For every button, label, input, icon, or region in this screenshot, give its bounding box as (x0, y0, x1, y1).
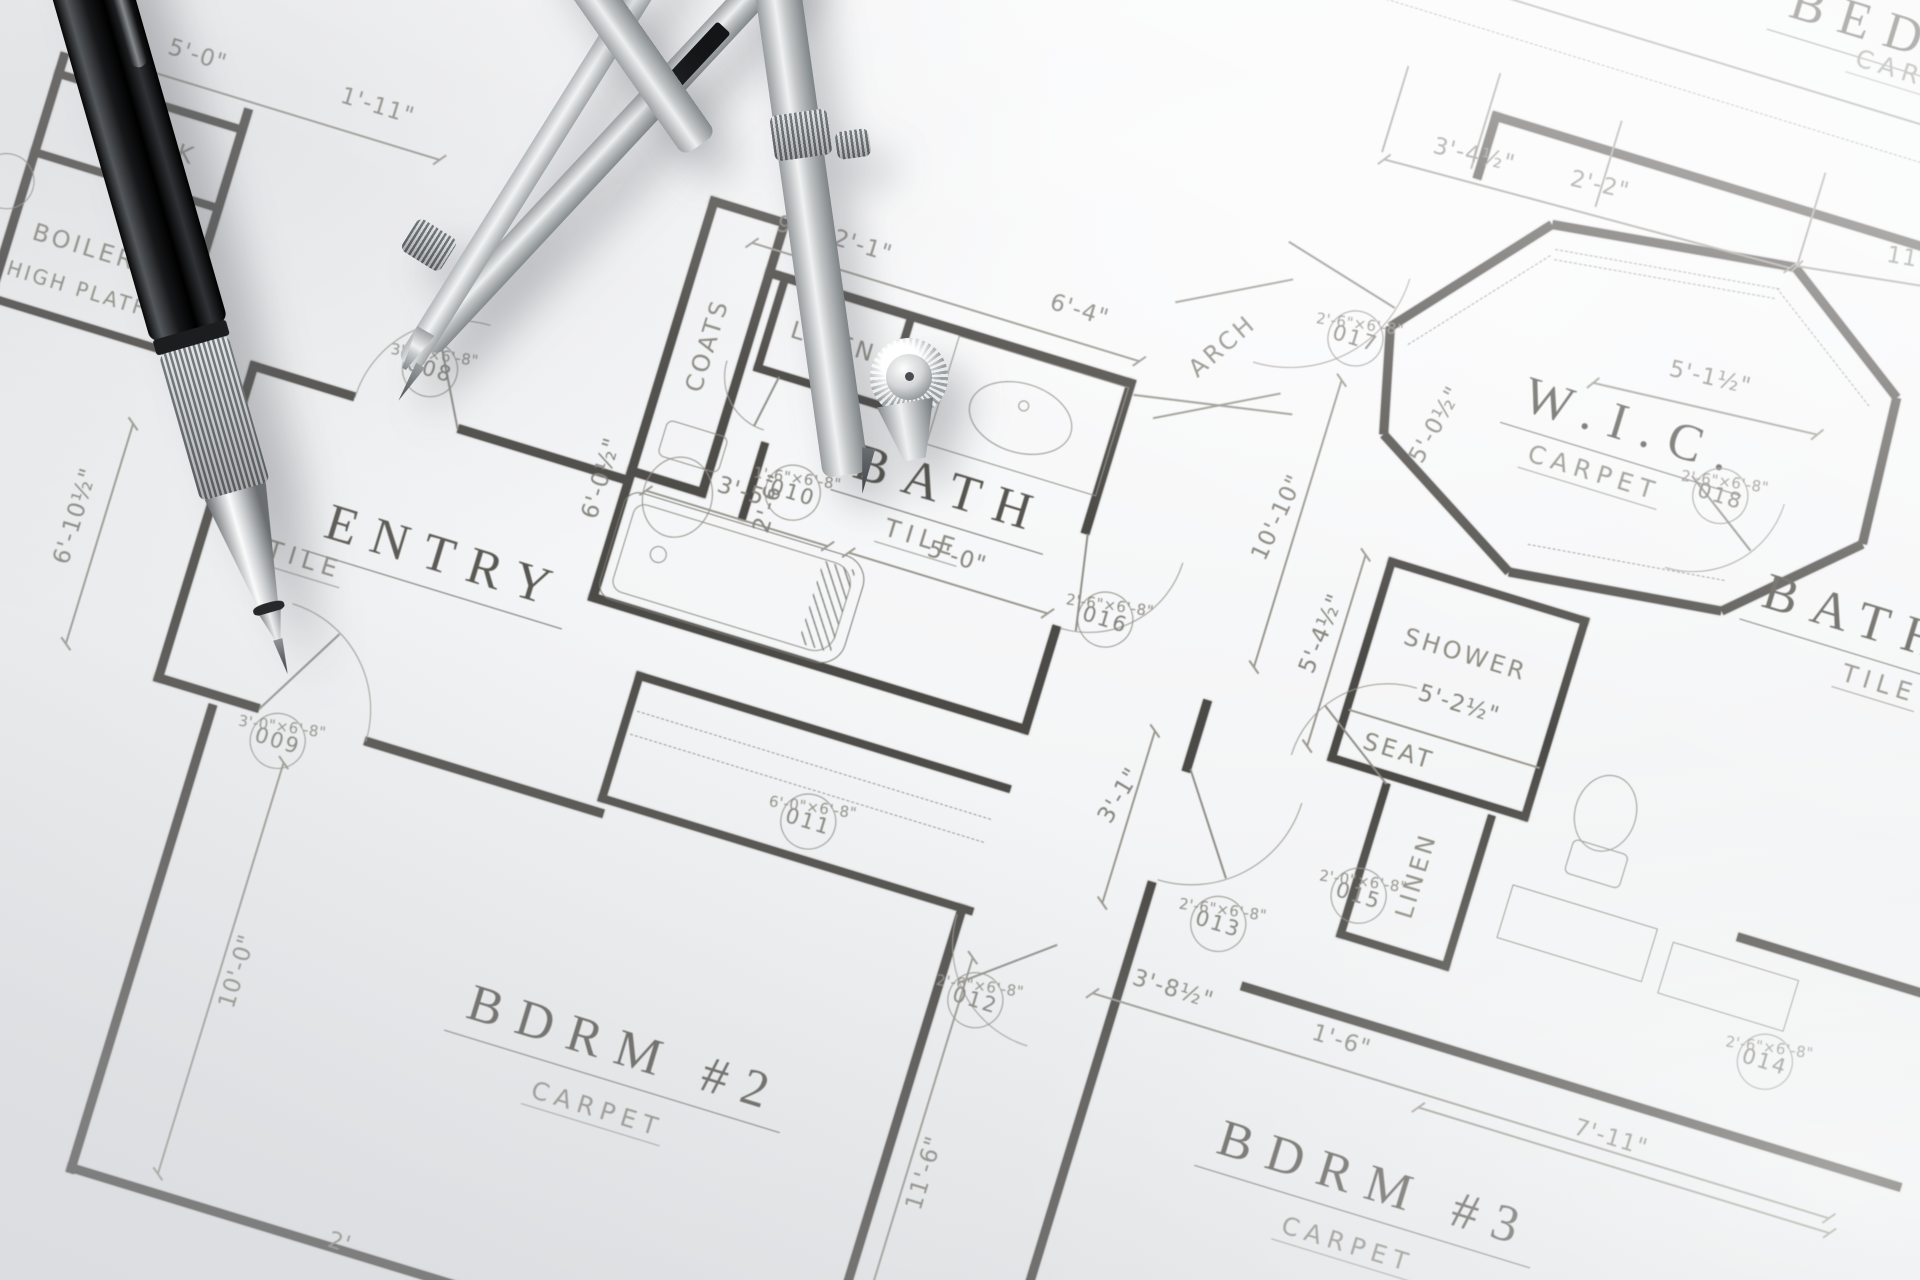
compass-thumb-wheel (834, 128, 872, 160)
dimension-label: 3'-1" (1093, 763, 1146, 828)
blueprint-photo: 5'-0" 1'-11" 9" 2'-1" 6'-4" 3'-5" 5'-0" … (0, 0, 1920, 1280)
vanity (1657, 942, 1799, 1032)
label-arch: ARCH (1183, 309, 1262, 383)
door-swing-arc (1046, 624, 1336, 914)
wall (1336, 929, 1451, 971)
label-shower: SHOWER (1401, 622, 1532, 686)
door-swing-arc (1132, 85, 1447, 400)
dimension-label: 5'-0½" (1404, 382, 1467, 468)
wall (1520, 616, 1590, 822)
wall (248, 360, 356, 401)
dimension-label: 5'-2½" (1415, 680, 1503, 729)
compass-knurled-knob (769, 108, 833, 162)
dimension-label: 11'-6" (901, 1133, 948, 1213)
wall (1125, 880, 1157, 959)
dimension-label: 6'-4" (1047, 289, 1112, 331)
closet-label-linen-hall: LINEN (1390, 829, 1443, 922)
dimension-label: 6'-10½" (49, 465, 103, 568)
wall (1552, 220, 1797, 272)
hall-line (1133, 394, 1292, 415)
wall (1380, 431, 1512, 575)
witness-line (1381, 66, 1409, 153)
wall (810, 903, 968, 1280)
pen-needle (273, 638, 293, 675)
wall (1490, 111, 1920, 371)
dimension-label: 5'-0" (165, 34, 230, 76)
wall (635, 671, 1012, 793)
wall (66, 1162, 566, 1280)
pen-cone (204, 482, 300, 614)
dimension-label: 7'-11" (1571, 1115, 1651, 1162)
wall (1441, 814, 1496, 971)
wall (363, 736, 605, 818)
room-label-bath-master: BATH (1739, 557, 1920, 684)
wall (1858, 397, 1901, 545)
wall (65, 703, 217, 1174)
compass-disc-pin (905, 372, 914, 381)
toilet-tank (1563, 838, 1629, 889)
wall (1182, 699, 1213, 773)
dimension-label: 2'-1" (830, 225, 895, 267)
wall (1792, 265, 1900, 401)
dimension-label: 11' (1885, 242, 1920, 274)
closet-rod (1554, 259, 1775, 299)
door-swing-arc (926, 813, 1191, 1078)
dimension-label: 5'-1½" (1667, 356, 1754, 400)
dimension-label: 2'-2" (1568, 166, 1633, 205)
wall (1388, 221, 1554, 331)
dimension-label: 10'-0" (214, 931, 261, 1011)
dimension-label: 1'-11" (337, 83, 417, 130)
wall (1387, 557, 1590, 626)
vanity (1496, 884, 1658, 982)
wall (1020, 624, 1062, 735)
